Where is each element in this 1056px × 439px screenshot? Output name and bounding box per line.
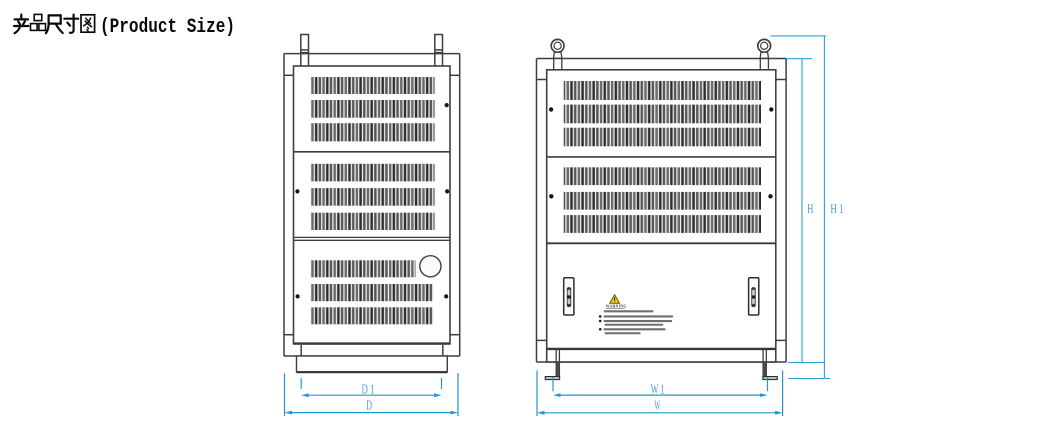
svg-text:H 1: H 1 [830, 202, 843, 217]
svg-text:(Product Size): (Product Size) [100, 16, 235, 39]
svg-text:W: W [654, 399, 660, 414]
svg-text:D 1: D 1 [362, 383, 375, 398]
svg-text:WARNING: WARNING [606, 305, 627, 309]
svg-text:H: H [807, 202, 813, 217]
svg-text:D: D [366, 399, 372, 414]
svg-text:W 1: W 1 [651, 383, 665, 398]
